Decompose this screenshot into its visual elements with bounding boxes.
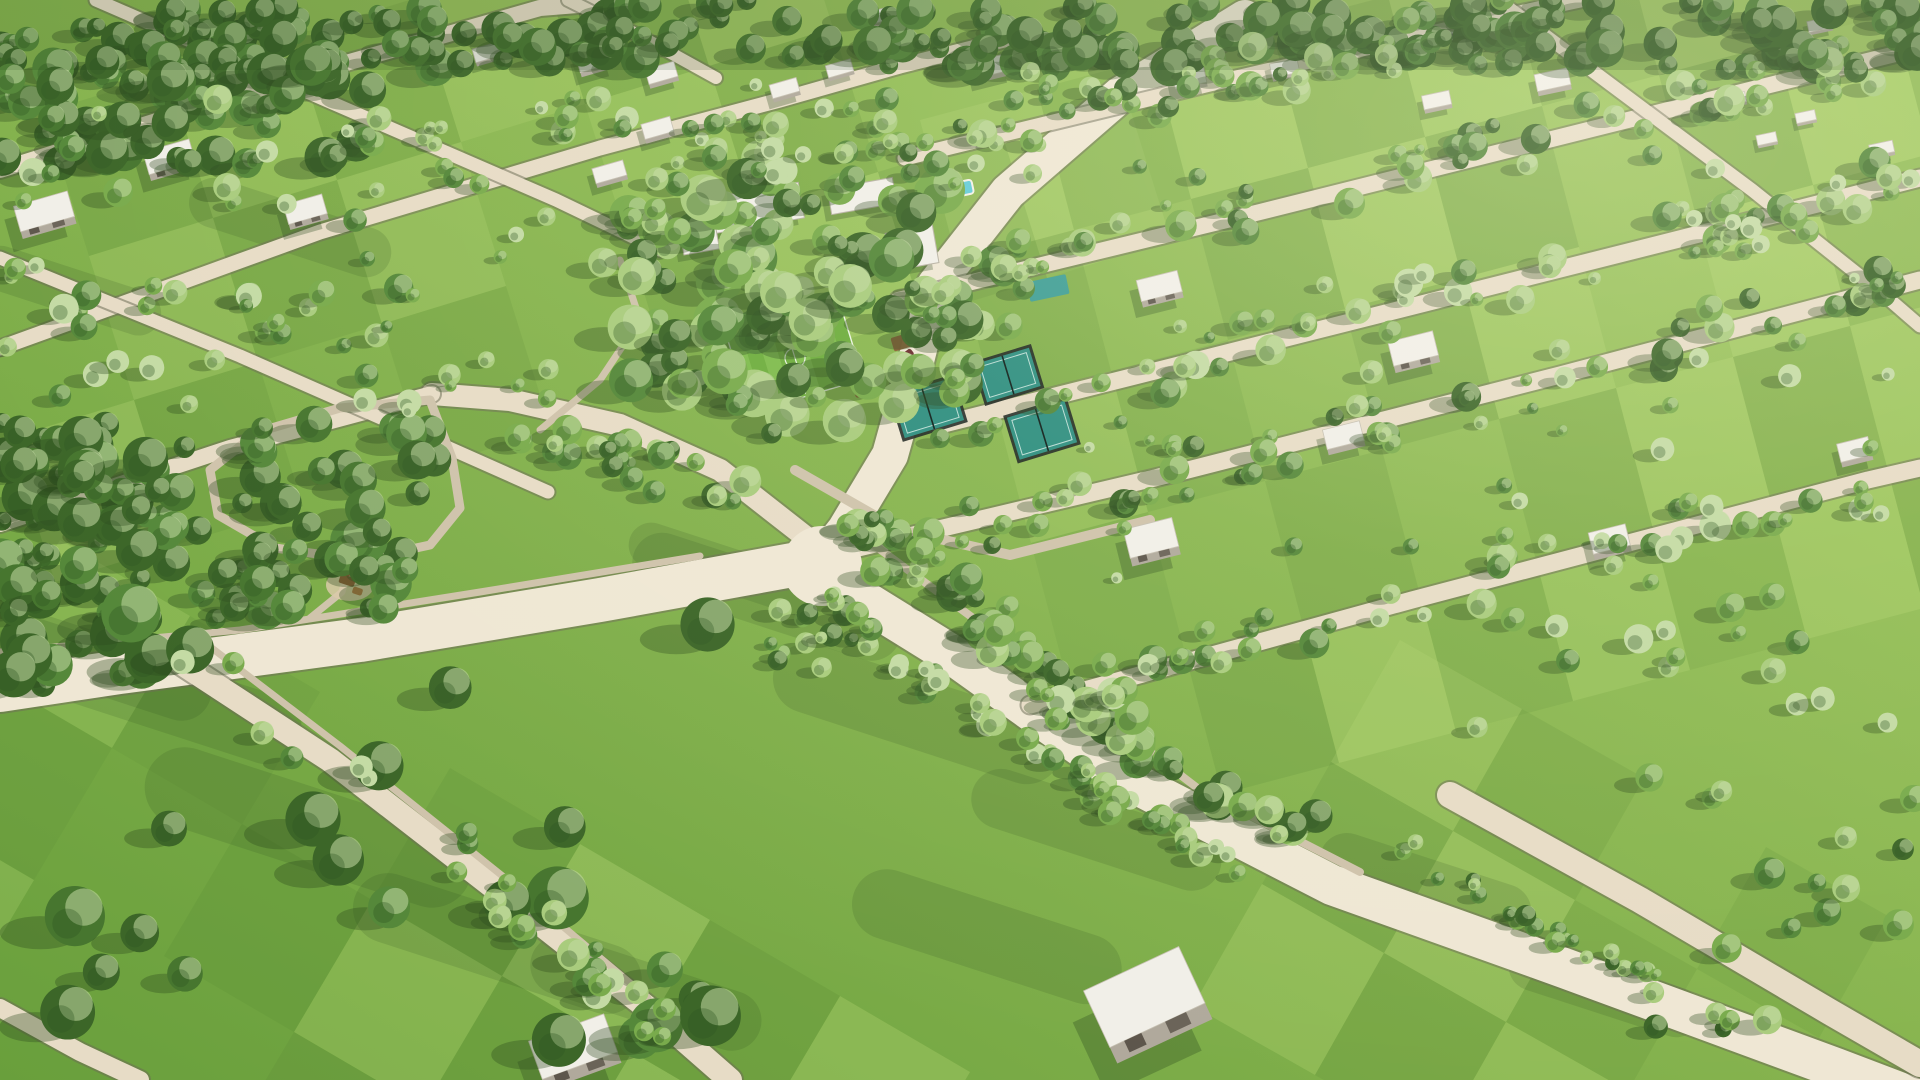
lighting-overlay [0,0,1920,1080]
render-svg [0,0,1920,1080]
sun-glow [0,0,1920,1080]
aerial-community-render [0,0,1920,1080]
horizon-forest-shade [0,0,1920,70]
